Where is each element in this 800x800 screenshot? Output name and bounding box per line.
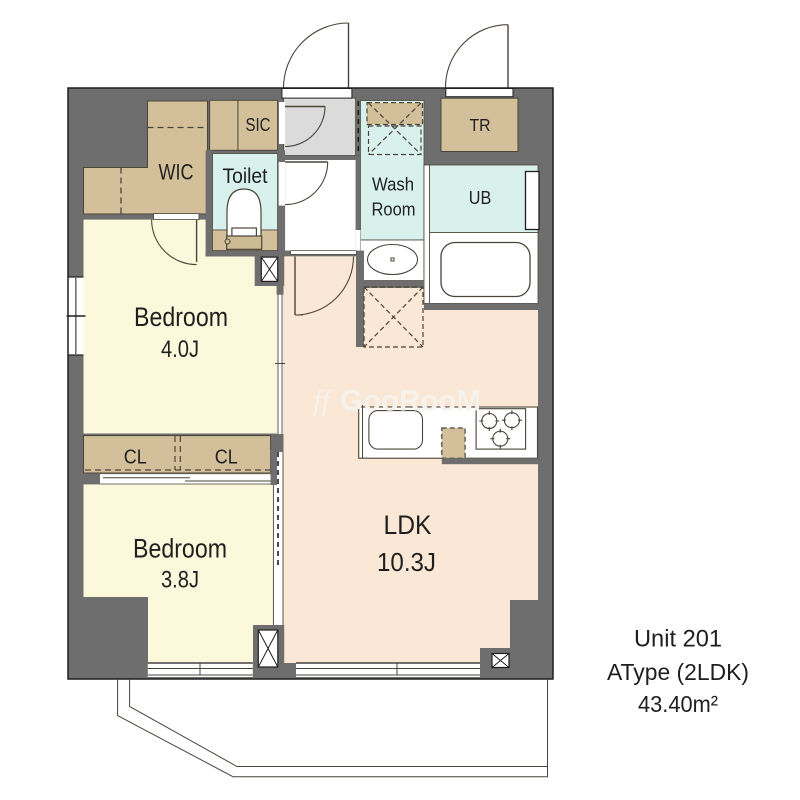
svg-text:10.3J: 10.3J [377,547,436,577]
svg-text:Unit 201: Unit 201 [634,626,722,653]
svg-text:LDK: LDK [384,510,432,540]
svg-text:Wash: Wash [372,175,414,195]
svg-text:Bedroom: Bedroom [133,534,227,564]
svg-text:3.8J: 3.8J [161,567,199,594]
svg-text:AType (2LDK): AType (2LDK) [607,659,749,685]
svg-text:TR: TR [470,115,491,135]
svg-text:UB: UB [469,187,492,208]
svg-text:4.0J: 4.0J [161,336,199,363]
svg-text:Room: Room [372,199,416,219]
svg-text:GooRooM: GooRooM [340,385,481,418]
svg-text:Bedroom: Bedroom [134,302,228,332]
svg-text:CL: CL [124,446,147,468]
svg-text:Toilet: Toilet [223,165,268,188]
svg-text:43.40m²: 43.40m² [638,691,718,717]
svg-text:WIC: WIC [159,160,194,185]
svg-text:SIC: SIC [246,115,271,135]
svg-text:CL: CL [215,446,238,468]
